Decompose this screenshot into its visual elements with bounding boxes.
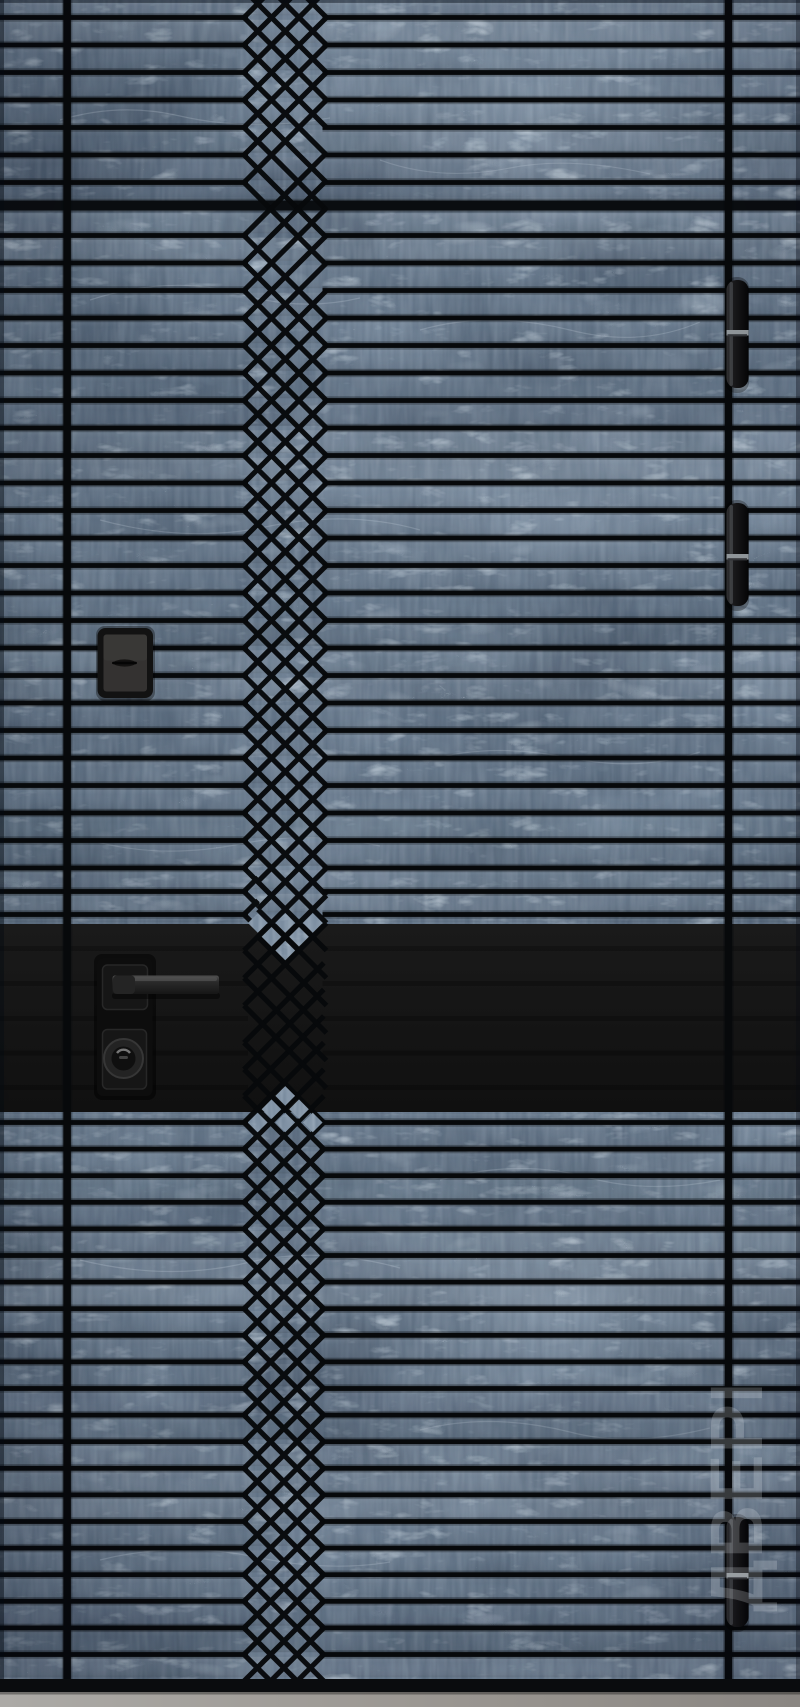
svg-text:ДВЕРI: ДВЕРI	[695, 1382, 778, 1612]
